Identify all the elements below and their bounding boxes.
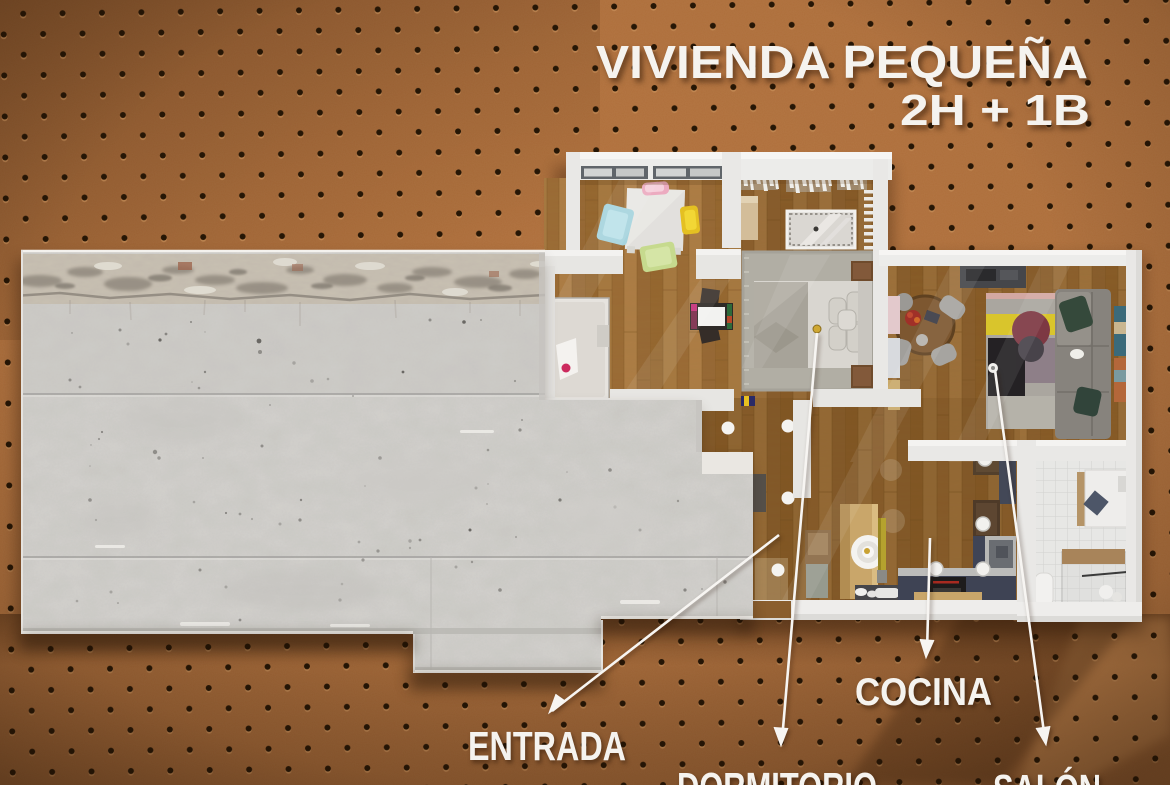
svg-text:2H + 1B: 2H + 1B bbox=[900, 86, 1090, 135]
svg-text:COCINA: COCINA bbox=[855, 671, 992, 714]
svg-text:DORMITORIO: DORMITORIO bbox=[677, 764, 877, 785]
svg-text:VIVIENDA PEQUEÑA: VIVIENDA PEQUEÑA bbox=[596, 36, 1088, 88]
svg-text:SALÓN: SALÓN bbox=[993, 766, 1101, 785]
svg-text:ENTRADA: ENTRADA bbox=[468, 723, 626, 769]
